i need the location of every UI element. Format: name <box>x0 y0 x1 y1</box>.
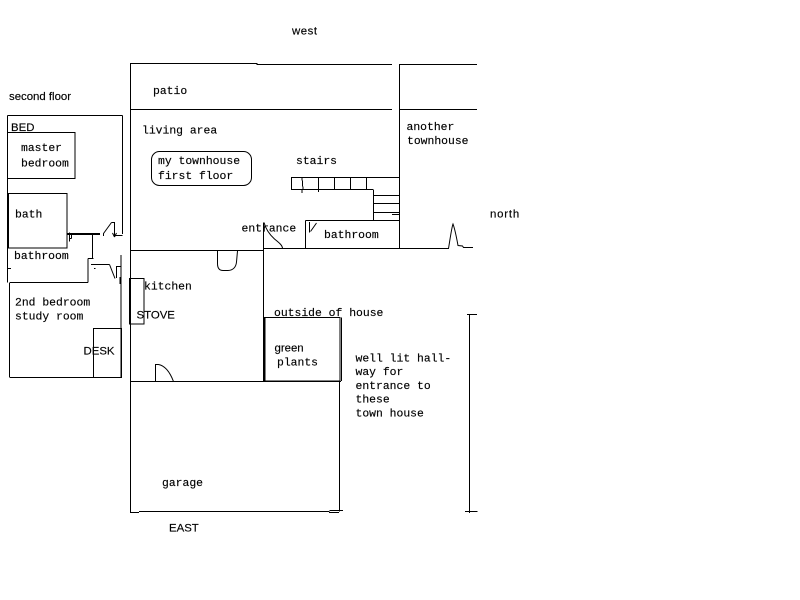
svg-text:bathroom: bathroom <box>14 251 69 263</box>
svg-text:bath: bath <box>15 210 42 222</box>
svg-text:first floor: first floor <box>158 171 233 183</box>
svg-text:second floor: second floor <box>9 91 71 103</box>
svg-text:EAST: EAST <box>169 523 199 535</box>
svg-text:kitchen: kitchen <box>144 282 192 294</box>
svg-text:north: north <box>490 209 520 221</box>
svg-text:DESK: DESK <box>84 346 115 358</box>
svg-text:entrance to: entrance to <box>356 381 431 393</box>
svg-text:these: these <box>356 395 390 407</box>
svg-text:garage: garage <box>162 478 203 490</box>
svg-text:living area: living area <box>142 126 217 138</box>
svg-text:town house: town house <box>356 408 425 420</box>
svg-text:STOVE: STOVE <box>137 310 176 322</box>
svg-text:study room: study room <box>15 312 84 324</box>
svg-text:west: west <box>291 26 318 38</box>
svg-text:outside of house: outside of house <box>274 308 384 320</box>
svg-text:my townhouse: my townhouse <box>158 156 240 168</box>
svg-text:patio: patio <box>153 86 187 98</box>
svg-text:way for: way for <box>356 367 404 379</box>
svg-text:bathroom: bathroom <box>324 230 379 242</box>
svg-text:stairs: stairs <box>296 156 337 168</box>
svg-text:master: master <box>21 143 62 155</box>
svg-text:2nd bedroom: 2nd bedroom <box>15 298 90 310</box>
svg-text:townhouse: townhouse <box>407 136 469 148</box>
svg-text:green: green <box>275 343 304 355</box>
svg-text:well lit hall-: well lit hall- <box>356 354 452 366</box>
svg-text:bedroom: bedroom <box>21 159 69 171</box>
svg-text:another: another <box>407 122 455 134</box>
svg-text:entrance: entrance <box>242 224 297 236</box>
svg-text:plants: plants <box>277 358 318 370</box>
